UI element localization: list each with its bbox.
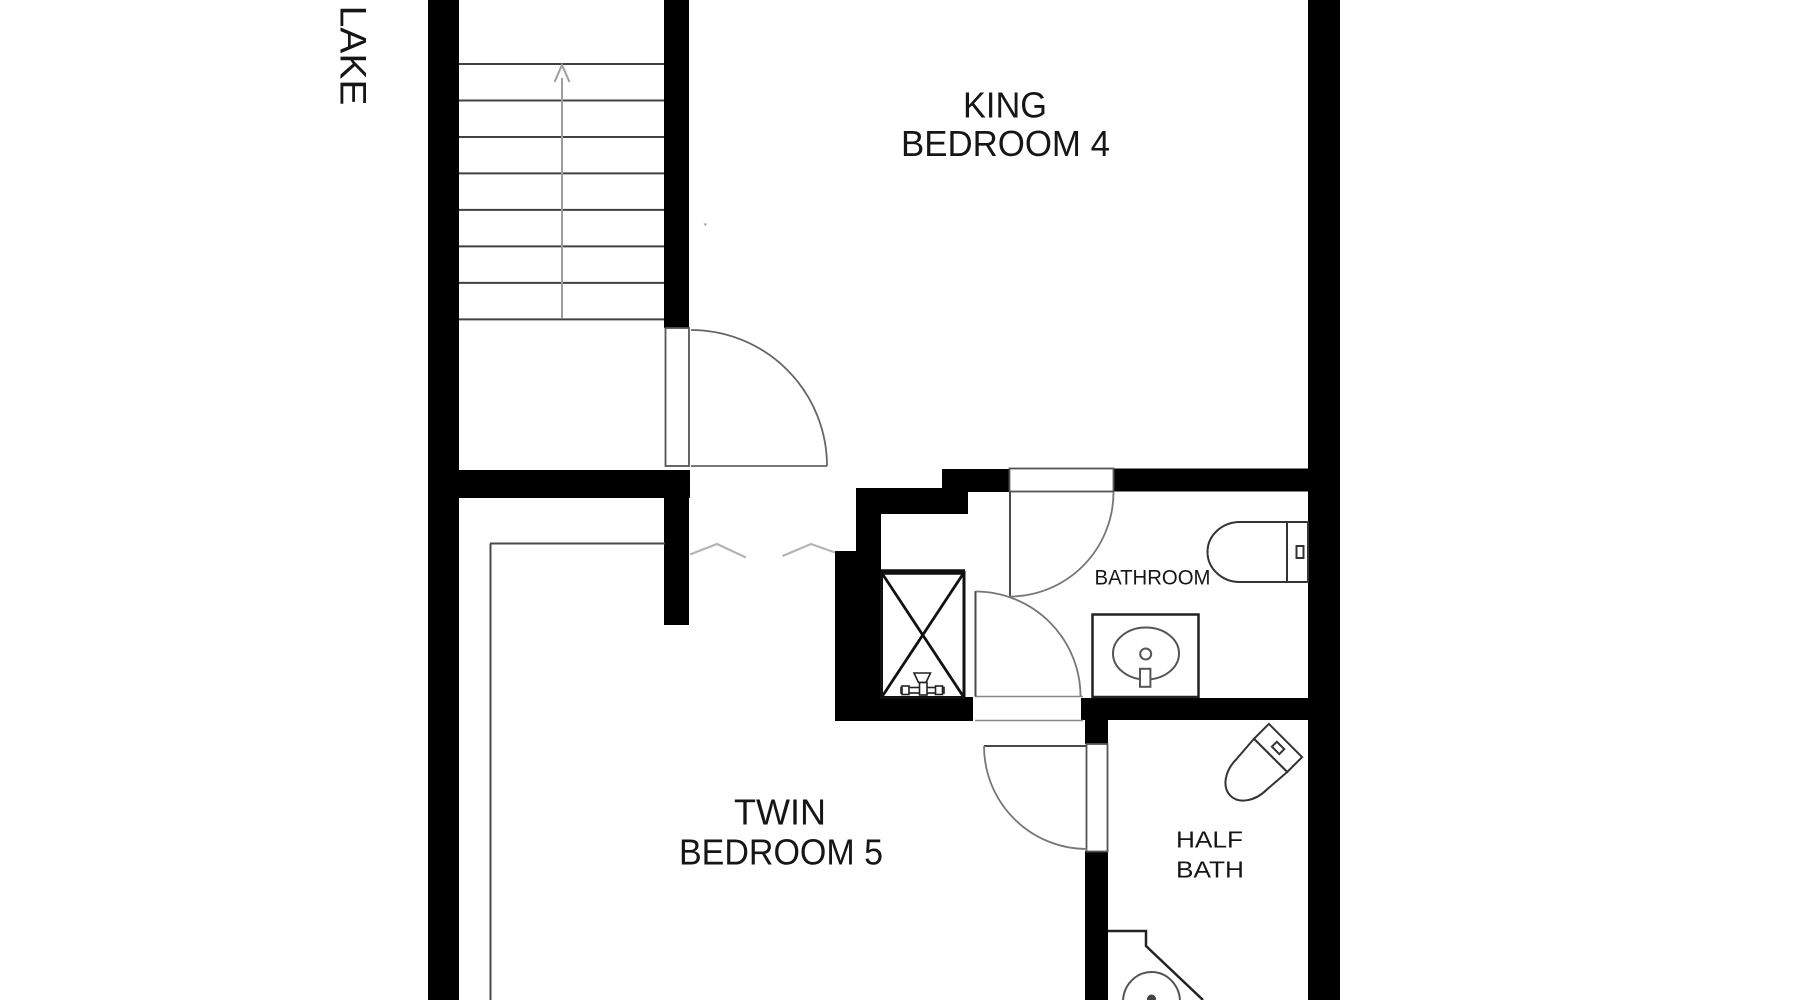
svg-text:BATH: BATH <box>1176 857 1244 883</box>
svg-text:KING: KING <box>963 85 1047 126</box>
svg-text:BEDROOM 4: BEDROOM 4 <box>901 123 1110 164</box>
svg-text:BEDROOM 5: BEDROOM 5 <box>679 832 883 873</box>
svg-text:HALF: HALF <box>1176 827 1243 853</box>
svg-text:BATHROOM: BATHROOM <box>1095 566 1211 590</box>
svg-text:LAKE: LAKE <box>333 6 374 106</box>
svg-text:TWIN: TWIN <box>734 792 826 833</box>
